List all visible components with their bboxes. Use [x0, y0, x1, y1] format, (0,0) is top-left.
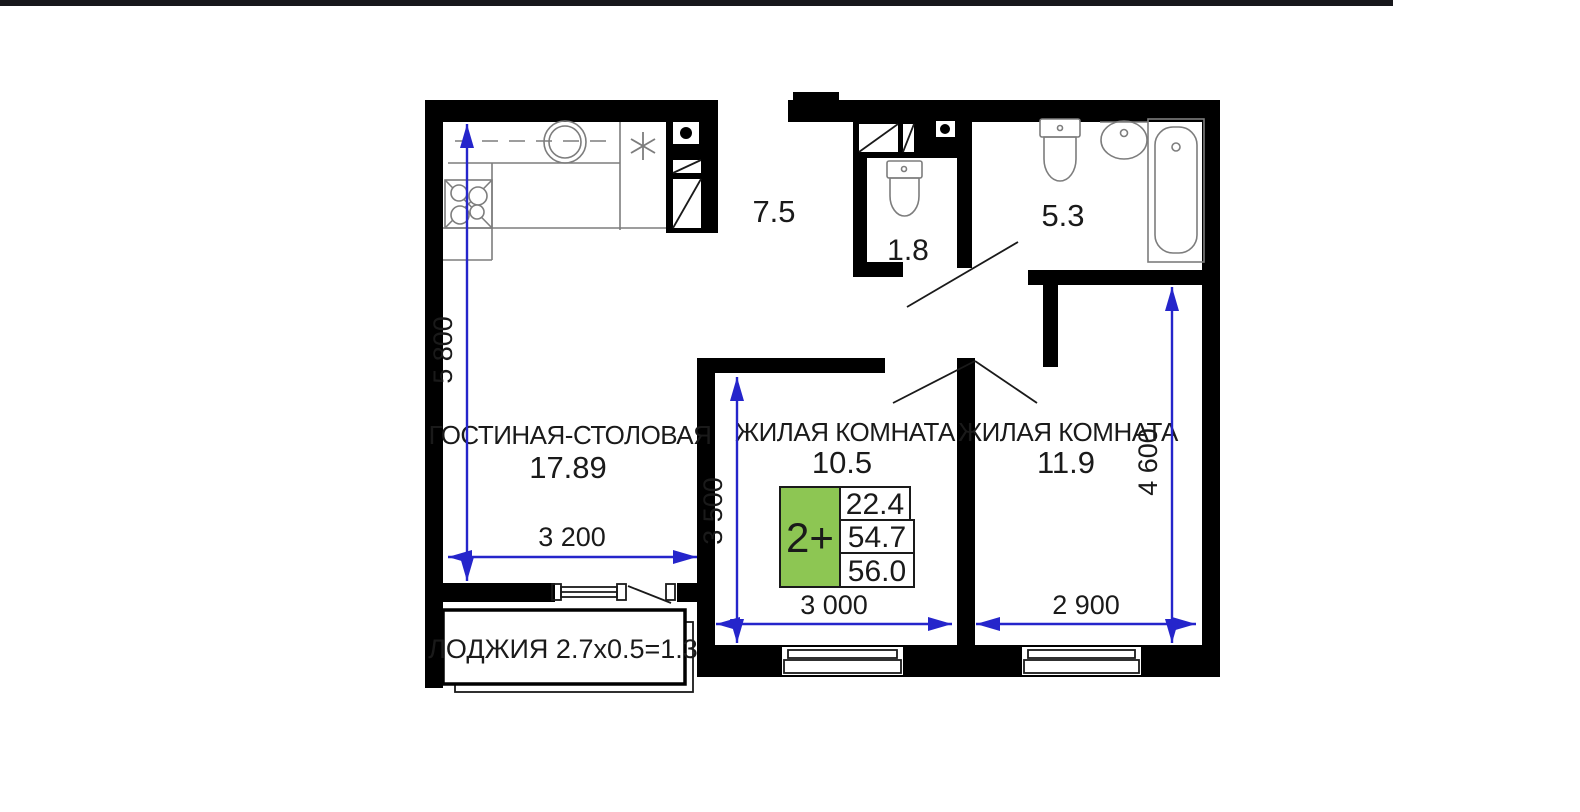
cooker-hood-icon [631, 132, 655, 160]
dim-text-3000: 3 000 [800, 590, 868, 620]
window-bedroom2 [1022, 647, 1141, 675]
room-area-bedroom1: 10.5 [812, 445, 872, 480]
dimension-bedroom2-height: 4 600 [1133, 287, 1179, 643]
screenshot-canvas: ЛОДЖИЯ 2.7x0.5=1.3 ГОСТИНАЯ-СТОЛОВАЯ 17.… [0, 0, 1580, 812]
info-value-total-area: 56.0 [848, 555, 906, 588]
bathtub-icon [1148, 119, 1204, 262]
info-value-living-area: 22.4 [846, 488, 904, 521]
apartment-info-card: 2+ 22.4 54.7 56.0 [780, 487, 914, 588]
vent-dot-icon [680, 127, 692, 139]
dimension-bedroom1-width: 3 000 [716, 590, 952, 631]
room-area-wc: 1.8 [887, 234, 929, 267]
vent-dot-icon [940, 124, 950, 134]
kitchen-sink-icon [544, 121, 586, 163]
bedroom2-door-swing [975, 361, 1037, 403]
dim-text-3200: 3 200 [538, 522, 606, 552]
dim-text-5800: 5 800 [428, 316, 458, 384]
bathroom-fixtures [1040, 119, 1204, 262]
dimension-living-width: 3 200 [448, 522, 697, 564]
room-labels: ГОСТИНАЯ-СТОЛОВАЯ 17.89 ЖИЛАЯ КОМНАТА 10… [429, 194, 1179, 485]
window-bedroom1 [782, 647, 903, 675]
apartment-type-label: 2+ [786, 514, 834, 561]
room-area-bedroom2: 11.9 [1037, 445, 1095, 480]
room-area-bathroom: 5.3 [1041, 198, 1084, 233]
dimension-bedroom2-width: 2 900 [976, 590, 1196, 631]
top-window-strip [0, 0, 1393, 6]
loggia-label: ЛОДЖИЯ 2.7x0.5=1.3 [428, 634, 698, 664]
balcony-door-unit [552, 584, 675, 603]
kitchen-fixtures [443, 121, 666, 260]
bath-toilet-icon [1040, 119, 1080, 181]
dim-text-2900: 2 900 [1052, 590, 1120, 620]
stove-icon [445, 180, 492, 228]
floor-plan-svg: ЛОДЖИЯ 2.7x0.5=1.3 ГОСТИНАЯ-СТОЛОВАЯ 17.… [0, 0, 1580, 812]
loggia: ЛОДЖИЯ 2.7x0.5=1.3 [428, 610, 698, 692]
room-area-living-dining: 17.89 [529, 450, 607, 485]
room-label-living-dining: ГОСТИНАЯ-СТОЛОВАЯ [429, 420, 712, 450]
wc-toilet-icon [887, 161, 922, 216]
room-label-bedroom1: ЖИЛАЯ КОМНАТА [735, 417, 956, 447]
wash-basin-icon [1100, 121, 1148, 159]
dim-text-4600: 4 600 [1133, 428, 1163, 496]
balcony-door-swing [628, 586, 671, 603]
info-value-apartment-area: 54.7 [848, 521, 906, 554]
dim-text-3500: 3 500 [698, 477, 728, 545]
room-area-hall: 7.5 [752, 194, 795, 229]
